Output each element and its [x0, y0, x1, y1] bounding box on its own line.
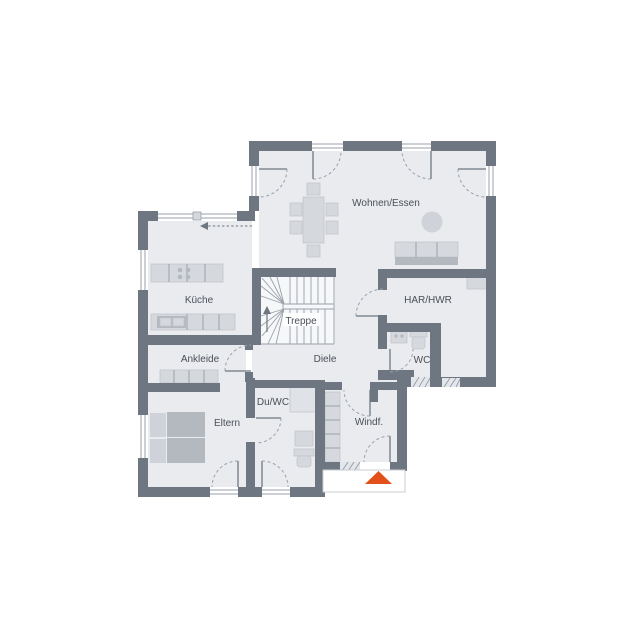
kitchen-base-counter — [151, 314, 235, 330]
stairwell-floor — [261, 277, 334, 344]
dining-chair — [290, 203, 302, 216]
room-label-du-wc: Du/WC — [257, 397, 289, 408]
floorplan-canvas: Wohnen/Essen Küche Treppe HAR/HWR WC Ank… — [0, 0, 636, 636]
room-label-ankleide: Ankleide — [181, 354, 220, 365]
entrance-porch — [323, 470, 405, 492]
pillow — [150, 439, 166, 463]
dining-chair — [326, 203, 338, 216]
room-label-treppe: Treppe — [285, 316, 317, 327]
bathroom-sink — [295, 431, 313, 446]
kitchen-wall-counter — [151, 264, 223, 282]
hatched-window-wc — [411, 377, 430, 387]
window-kueche-left — [138, 250, 148, 290]
wc-sink — [391, 331, 407, 343]
sofa — [395, 242, 458, 265]
hatched-window-har — [442, 378, 460, 387]
room-label-wohnen-essen: Wohnen/Essen — [352, 198, 420, 209]
dining-chair — [290, 221, 302, 234]
room-label-wc: WC — [414, 355, 431, 366]
toilet — [294, 449, 314, 467]
closet-windfang — [325, 392, 340, 462]
window-wohnen-left — [249, 166, 259, 196]
room-label-eltern: Eltern — [214, 418, 240, 429]
room-label-har-hwr: HAR/HWR — [404, 295, 452, 306]
floorplan-svg: Wohnen/Essen Küche Treppe HAR/HWR WC Ank… — [0, 0, 636, 636]
pillow — [150, 413, 166, 437]
window-wohnen-right — [486, 166, 496, 196]
room-label-kueche: Küche — [185, 295, 214, 306]
round-rug — [422, 212, 443, 233]
wc-toilet — [410, 331, 427, 349]
window-kueche-top-sliding — [158, 211, 237, 221]
dining-chair — [307, 245, 320, 257]
kitchen-sink — [157, 316, 186, 328]
window-wohnen-top-1 — [312, 141, 343, 151]
dining-chair — [307, 183, 320, 195]
room-label-diele: Diele — [314, 354, 337, 365]
room-label-windfang: Windf. — [355, 417, 383, 428]
dining-chair — [326, 221, 338, 234]
wardrobe-ankleide — [160, 370, 218, 383]
window-eltern-bottom — [210, 487, 238, 497]
window-wohnen-top-2 — [402, 141, 431, 151]
window-duwc-bottom — [262, 487, 290, 497]
dining-table — [303, 197, 324, 243]
window-eltern-left — [138, 415, 148, 458]
